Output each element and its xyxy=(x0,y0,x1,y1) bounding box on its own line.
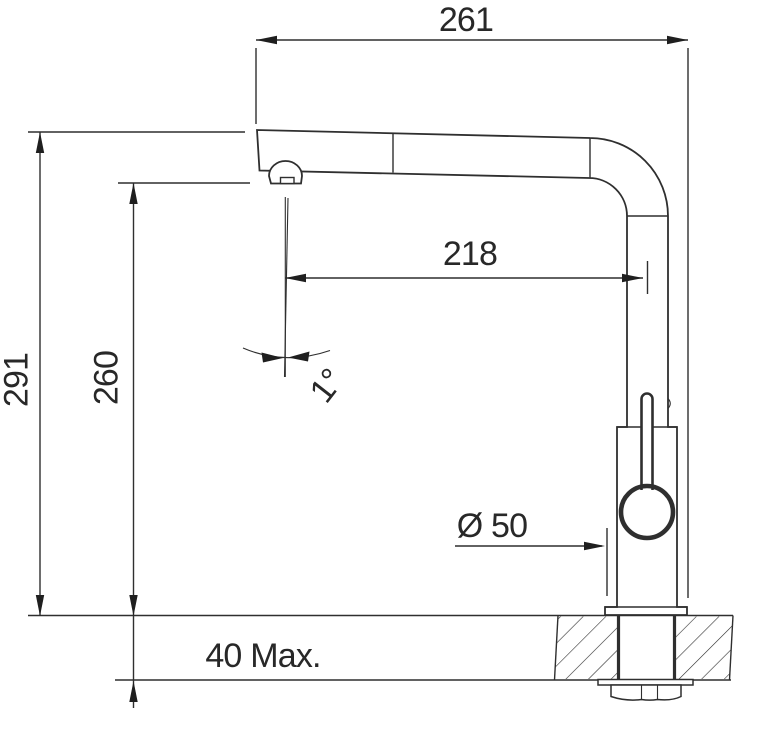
faucet-dimension-drawing: 1° 261 291 260 218 Ø 50 xyxy=(0,0,784,742)
dim-260-label: 260 xyxy=(88,351,126,405)
dimension-diameter-50: Ø 50 xyxy=(455,507,607,596)
angle-arc xyxy=(243,348,330,358)
dimension-218: 218 xyxy=(285,235,648,294)
dim-218-arrow-left xyxy=(285,274,306,282)
dim-260-arrow-bottom xyxy=(129,595,137,616)
mounting-nut xyxy=(611,685,681,700)
countertop-hatch-right xyxy=(676,617,733,680)
dim-291-label: 291 xyxy=(0,353,36,407)
dim-291-arrow-top xyxy=(36,132,44,153)
dimension-40-max: 40 Max. xyxy=(129,637,320,702)
dimension-260: 260 xyxy=(88,183,251,708)
dim-261-arrow-right xyxy=(667,36,688,44)
angle-arrow-left xyxy=(262,353,284,363)
diameter-50-label: Ø 50 xyxy=(457,507,528,545)
max-thickness-40-label: 40 Max. xyxy=(205,637,320,675)
dim-50-arrow xyxy=(584,542,605,550)
dim-260-arrow-top xyxy=(129,183,137,204)
dim-40-arrow-up xyxy=(129,681,137,702)
countertop-hatch-left xyxy=(555,617,617,680)
dim-261-arrow-left xyxy=(256,36,277,44)
dim-218-label: 218 xyxy=(443,235,497,273)
aerator-outlet xyxy=(281,178,295,184)
washer xyxy=(598,680,693,686)
angle-1deg-label: 1° xyxy=(303,362,352,410)
stream-angle-dimension: 1° xyxy=(243,197,351,410)
technical-drawing-page: 1° 261 291 260 218 Ø 50 xyxy=(0,0,784,742)
angle-arrow-right xyxy=(288,352,310,362)
dim-291-arrow-bottom xyxy=(36,595,44,616)
handle-stem xyxy=(642,394,653,491)
dim-261-label: 261 xyxy=(439,1,493,39)
